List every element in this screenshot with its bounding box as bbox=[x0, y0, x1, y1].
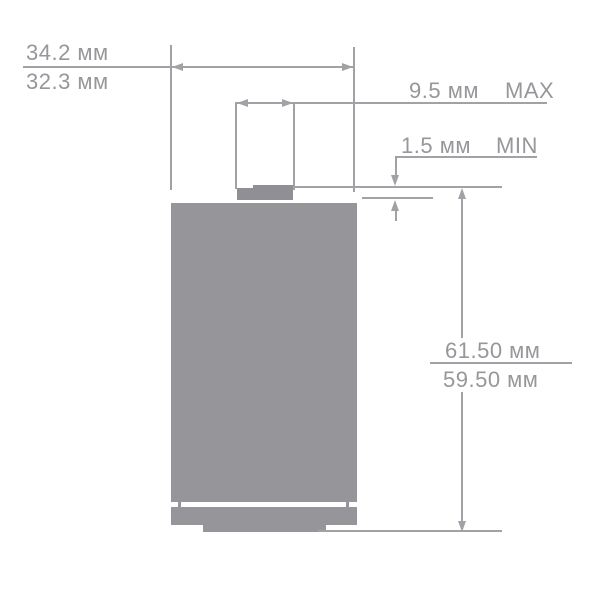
button-height-arrow-down-icon bbox=[391, 175, 399, 186]
label-diameter-max: 34.2 мм bbox=[26, 42, 109, 64]
height-fraction-bar bbox=[430, 362, 572, 364]
label-height-max: 61.50 мм bbox=[445, 340, 540, 362]
button-extension-line-left bbox=[235, 102, 237, 189]
height-dimension-line-upper bbox=[461, 197, 463, 338]
button-extension-line-right bbox=[293, 102, 295, 190]
battery-bottom-groove bbox=[171, 502, 357, 507]
battery-button-terminal bbox=[237, 188, 293, 200]
label-button-height: 1.5 мм bbox=[401, 135, 471, 157]
groove-tick-right bbox=[346, 502, 349, 507]
groove-tick-left bbox=[178, 502, 181, 507]
height-dimension-line-lower bbox=[461, 392, 463, 522]
button-height-arrow-tail bbox=[395, 210, 397, 221]
button-arrow-right-icon bbox=[282, 99, 293, 107]
label-button-diameter-qualifier: MAX bbox=[505, 80, 554, 102]
diameter-arrow-left-icon bbox=[172, 63, 183, 71]
battery-body bbox=[171, 203, 357, 525]
battery-base-terminal bbox=[203, 525, 326, 532]
diameter-extension-line-right bbox=[353, 47, 355, 192]
label-diameter-min: 32.3 мм bbox=[26, 71, 109, 93]
diameter-arrow-right-icon bbox=[342, 63, 353, 71]
button-arrow-left-icon bbox=[237, 99, 248, 107]
button-top-reference-line bbox=[294, 186, 502, 188]
button-height-leader-drop bbox=[395, 156, 397, 176]
button-base-reference-line bbox=[362, 197, 433, 199]
base-reference-line bbox=[318, 530, 502, 532]
label-button-diameter: 9.5 мм bbox=[409, 80, 479, 102]
label-button-height-qualifier: MIN bbox=[496, 135, 538, 157]
battery-dimension-diagram: 34.2 мм 32.3 мм 9.5 мм MAX 1.5 мм MIN 61… bbox=[0, 0, 600, 600]
label-height-min: 59.50 мм bbox=[443, 369, 538, 391]
diameter-dimension-line bbox=[23, 66, 355, 68]
